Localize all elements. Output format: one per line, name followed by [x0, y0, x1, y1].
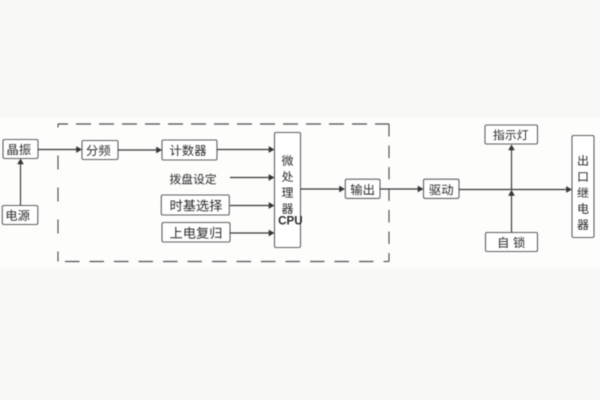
svg-text:CPU: CPU — [278, 214, 302, 227]
